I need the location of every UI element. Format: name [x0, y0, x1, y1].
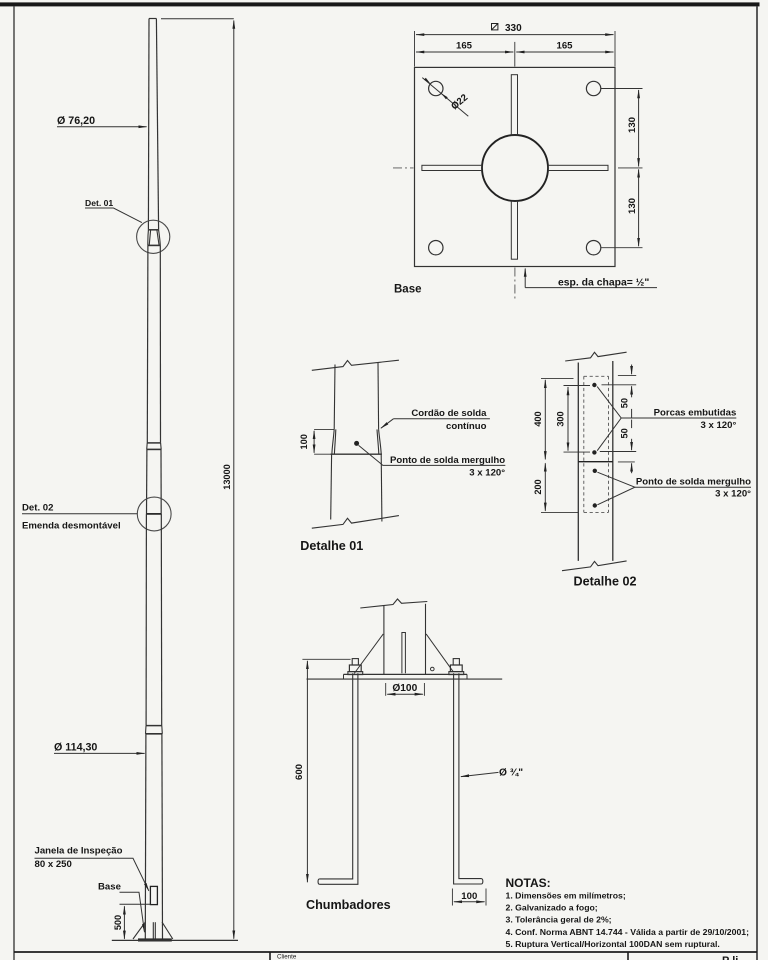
svg-text:3 x 120°: 3 x 120°	[715, 489, 751, 500]
svg-text:80 x 250: 80 x 250	[35, 859, 72, 870]
svg-text:Porcas embutidas: Porcas embutidas	[654, 408, 737, 419]
svg-text:13000: 13000	[222, 464, 232, 490]
svg-text:130: 130	[627, 117, 638, 133]
svg-text:esp. da chapa= ½": esp. da chapa= ½"	[558, 277, 649, 288]
svg-text:165: 165	[556, 41, 573, 52]
svg-text:Cordão de solda: Cordão de solda	[411, 408, 487, 419]
svg-text:Base: Base	[394, 284, 422, 296]
svg-text:Janela de Inspeção: Janela de Inspeção	[35, 846, 123, 857]
svg-text:Ø100: Ø100	[392, 683, 417, 694]
svg-text:Ø 76,20: Ø 76,20	[57, 115, 95, 127]
svg-text:400: 400	[533, 411, 543, 426]
svg-text:Ø ¾": Ø ¾"	[499, 768, 523, 779]
svg-text:5. Ruptura Vertical/Horizontal: 5. Ruptura Vertical/Horizontal 100DAN se…	[506, 939, 720, 949]
svg-text:2. Galvanizado a fogo;: 2. Galvanizado a fogo;	[506, 903, 598, 913]
svg-text:Detalhe 01: Detalhe 01	[300, 539, 363, 553]
svg-text:3 x 120°: 3 x 120°	[469, 467, 505, 478]
svg-text:Det. 01: Det. 01	[85, 198, 113, 208]
svg-text:Ponto de solda mergulho: Ponto de solda mergulho	[390, 455, 505, 466]
svg-text:Ponto de solda mergulho: Ponto de solda mergulho	[636, 476, 751, 487]
svg-text:165: 165	[456, 41, 473, 52]
svg-text:Chumbadores: Chumbadores	[306, 898, 391, 912]
svg-text:500: 500	[113, 915, 123, 930]
svg-text:130: 130	[627, 198, 638, 214]
svg-text:1. Dimensões em milímetros;: 1. Dimensões em milímetros;	[506, 891, 626, 901]
svg-text:Emenda desmontável: Emenda desmontável	[22, 521, 121, 532]
svg-text:330: 330	[505, 23, 522, 34]
svg-text:Det. 02: Det. 02	[22, 503, 53, 514]
svg-text:Detalhe 02: Detalhe 02	[574, 574, 637, 588]
svg-text:300: 300	[556, 411, 566, 426]
svg-text:Cliente: Cliente	[277, 954, 297, 960]
svg-text:50: 50	[619, 398, 629, 408]
svg-text:Ø 114,30: Ø 114,30	[54, 742, 97, 754]
svg-text:50: 50	[619, 428, 629, 438]
svg-text:100: 100	[299, 434, 309, 449]
svg-text:3 x 120°: 3 x 120°	[700, 420, 736, 431]
svg-text:P li: P li	[722, 955, 738, 960]
svg-text:NOTAS:: NOTAS:	[506, 876, 551, 890]
svg-text:600: 600	[294, 764, 305, 780]
svg-text:Base: Base	[98, 882, 121, 893]
svg-text:100: 100	[461, 891, 477, 902]
svg-text:200: 200	[533, 479, 543, 494]
svg-text:3. Tolerância geral de 2%;: 3. Tolerância geral de 2%;	[506, 915, 612, 925]
svg-text:contínuo: contínuo	[446, 421, 487, 432]
svg-text:4. Conf. Norma ABNT 14.744 - V: 4. Conf. Norma ABNT 14.744 - Válida a pa…	[506, 927, 750, 937]
